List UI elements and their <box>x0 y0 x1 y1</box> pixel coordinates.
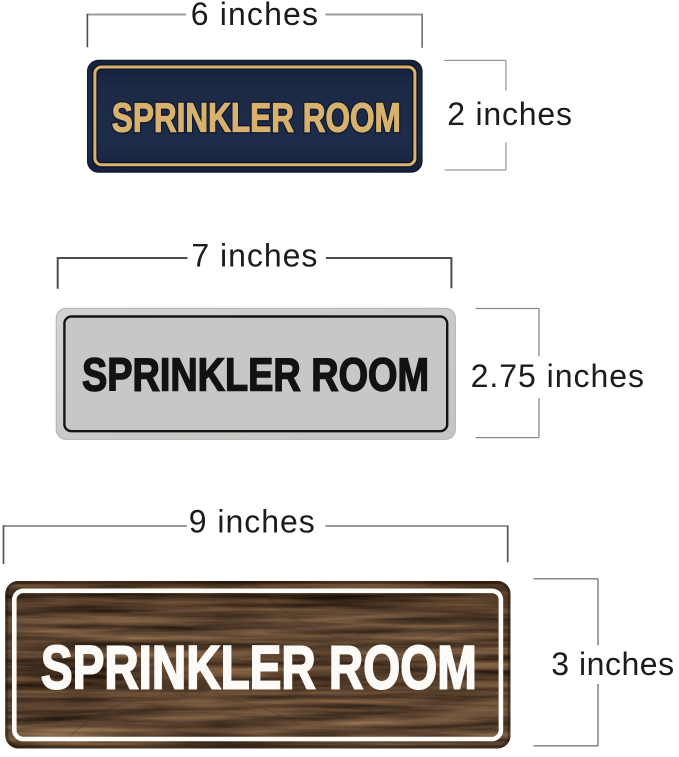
svg-text:SPRINKLER ROOM: SPRINKLER ROOM <box>82 348 429 400</box>
svg-text:9 inches: 9 inches <box>189 504 315 540</box>
svg-text:3 inches: 3 inches <box>551 646 674 682</box>
svg-text:2.75 inches: 2.75 inches <box>471 358 644 394</box>
svg-text:SPRINKLER ROOM: SPRINKLER ROOM <box>41 634 477 702</box>
svg-text:SPRINKLER ROOM: SPRINKLER ROOM <box>112 95 401 141</box>
svg-text:7 inches: 7 inches <box>191 238 317 274</box>
svg-text:6 inches: 6 inches <box>191 0 318 32</box>
svg-text:2 inches: 2 inches <box>447 96 572 132</box>
